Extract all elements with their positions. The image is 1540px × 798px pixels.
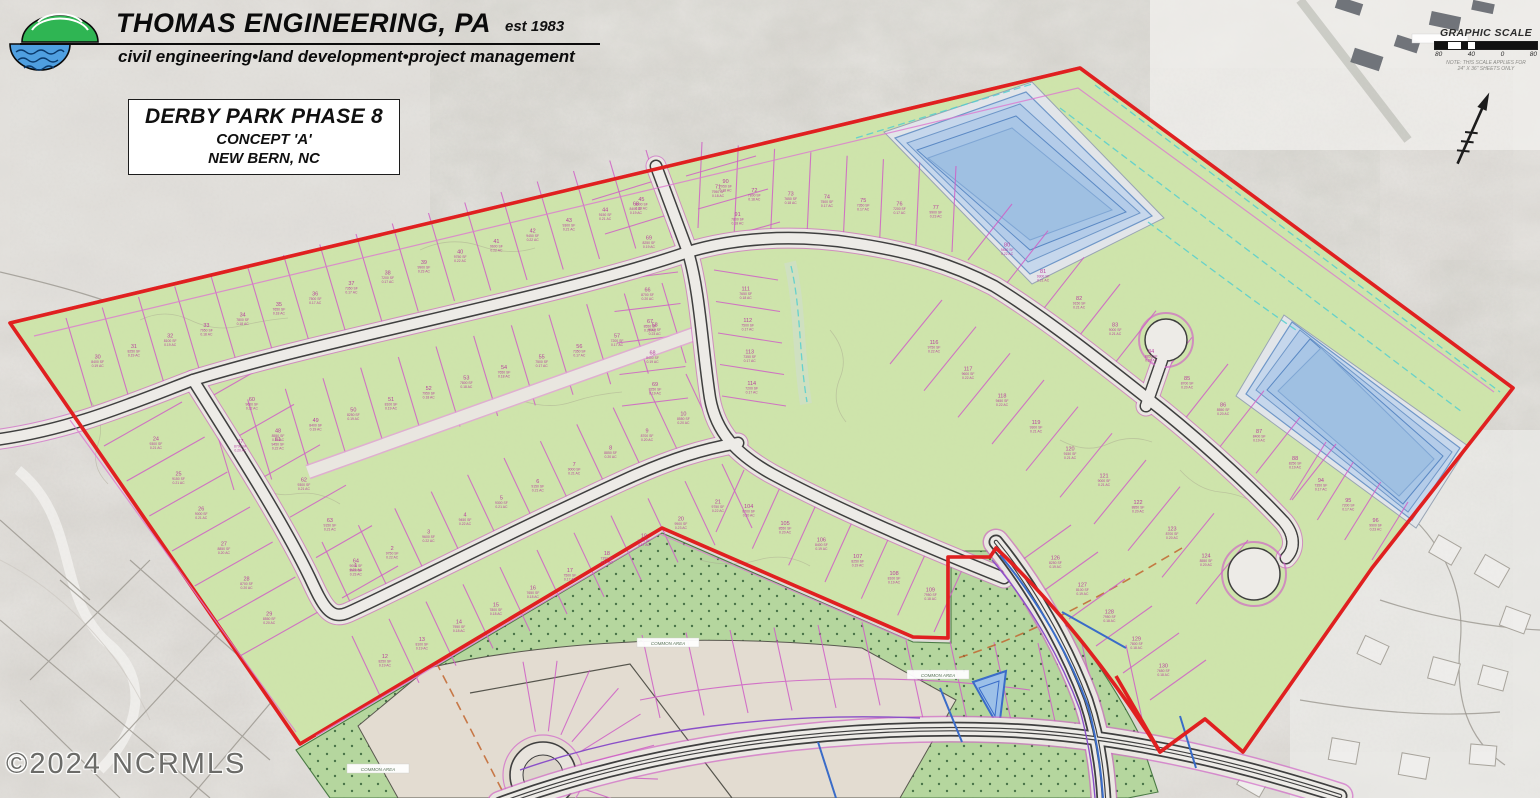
company-name: THOMAS ENGINEERING, PA [116,8,491,39]
header: THOMAS ENGINEERING, PA est 1983 civil en… [8,4,608,80]
scale-note-2: 24" X 36" SHEETS ONLY [1434,66,1538,72]
concept-label: CONCEPT 'A' [133,131,395,148]
watermark: ©2024 NCRMLS [6,748,246,781]
graphic-scale: GRAPHIC SCALE 8040 080 NOTE: THIS SCALE … [1434,27,1538,72]
common-area-label-3: COMMON AREA [361,767,395,772]
title-block: DERBY PARK PHASE 8 CONCEPT 'A' NEW BERN,… [128,99,400,175]
company-tagline: civil engineering•land development•proje… [118,47,575,67]
established-year: est 1983 [505,18,564,35]
project-title: DERBY PARK PHASE 8 [133,105,395,129]
site-plan-sheet: 308400 SF0.19 AC318250 SF0.19 AC328100 S… [0,0,1540,798]
company-logo [8,4,112,80]
north-arrow-icon [1438,84,1508,174]
culdesac-bulb [1228,548,1280,600]
common-area-label-1: COMMON AREA [651,641,685,646]
scale-ticks: 8040 080 [1434,51,1538,58]
common-area-label-2: COMMON AREA [921,673,955,678]
header-rule [20,43,600,45]
logo-water-icon [10,44,70,70]
project-location: NEW BERN, NC [133,150,395,167]
graphic-scale-title: GRAPHIC SCALE [1434,27,1538,39]
scale-bar [1434,41,1538,50]
